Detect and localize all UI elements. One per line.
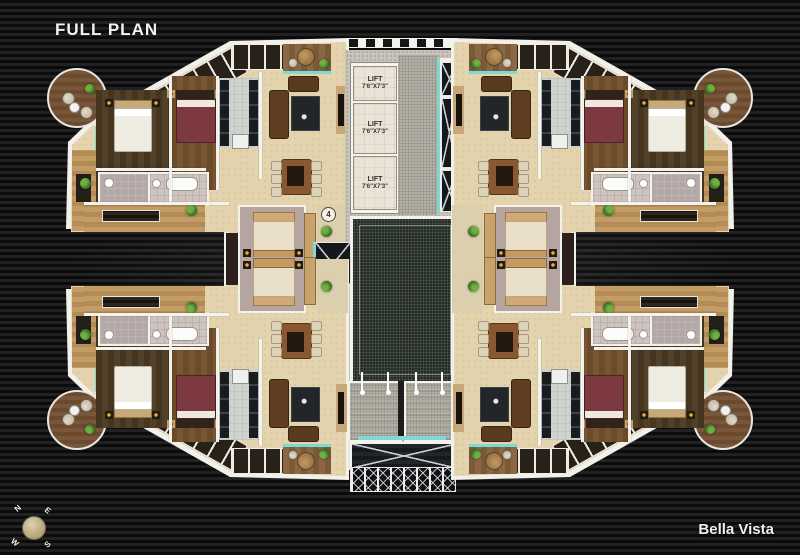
apartment-quadrant — [40, 259, 400, 490]
lift-size-label: 7'6"X7'3" — [362, 84, 388, 91]
balcony-table — [297, 48, 315, 66]
floor-plan-canvas: FULL PLAN Bella Vista — [0, 0, 800, 555]
deck-table — [69, 405, 80, 416]
sink — [152, 330, 161, 339]
nightstand — [105, 411, 113, 419]
master-bed — [648, 108, 686, 152]
lift-3: LIFT 7'6"X7'3" — [353, 156, 397, 210]
refrigerator — [232, 369, 249, 384]
foyer-plant — [468, 226, 479, 237]
coffee-table — [291, 96, 320, 131]
middle-bedroom-cabinet — [484, 213, 496, 261]
living-sofa — [481, 76, 512, 92]
living-sofa — [511, 379, 531, 428]
connector-wardrobe — [562, 259, 574, 285]
dining-chair — [311, 347, 322, 357]
connector-wardrobe — [226, 259, 238, 285]
dining-chair — [478, 321, 489, 331]
nightstand — [497, 249, 505, 257]
balcony-plant — [319, 449, 329, 459]
interior-wall — [259, 72, 262, 179]
deck-plant — [705, 84, 715, 94]
dining-table-center — [496, 166, 513, 186]
dining-chair — [478, 187, 489, 197]
dining-chair — [518, 161, 529, 171]
terrace-plant — [709, 329, 720, 340]
lift-2: LIFT 7'6"X7'3" — [353, 103, 397, 154]
balcony-plant — [319, 59, 329, 69]
unit-number: 4 — [326, 210, 330, 219]
terrace-plant — [603, 205, 614, 216]
deck-chair — [707, 399, 720, 412]
kitchen-counter — [542, 80, 551, 146]
sink — [152, 179, 161, 188]
balcony-table — [485, 452, 503, 470]
building-plan: LIFT 7'6"X7'3" LIFT 7'6"X7'3" LIFT 7'6"X… — [0, 0, 800, 555]
apartment-quadrant — [400, 259, 760, 490]
nightstand — [295, 261, 303, 269]
dining-chair — [518, 174, 529, 184]
nightstand — [687, 411, 695, 419]
middle-bed — [505, 266, 547, 297]
dining-chair — [518, 321, 529, 331]
master-bed — [114, 366, 152, 410]
toilet — [686, 330, 696, 340]
second-bed-headboard — [586, 90, 624, 99]
balcony-glass-line — [469, 71, 517, 74]
dining-chair — [311, 334, 322, 344]
nightstand — [640, 411, 648, 419]
living-sofa — [288, 76, 319, 92]
kitchen-counter — [249, 372, 258, 438]
kitchen-counter — [542, 372, 551, 438]
terrace-plant — [186, 205, 197, 216]
kitchen-counter — [249, 80, 258, 146]
interior-wall — [96, 347, 206, 350]
foyer-plant — [468, 281, 479, 292]
compass-dial-icon — [22, 516, 46, 540]
kitchen-counter — [571, 80, 580, 146]
middle-bed-headboard — [505, 258, 547, 268]
dining-chair — [271, 321, 282, 331]
connector-wardrobe — [562, 233, 574, 259]
coffee-table — [291, 387, 320, 422]
living-sofa — [481, 426, 512, 442]
lift-label: LIFT — [368, 121, 383, 129]
deck-chair — [80, 399, 93, 412]
second-bed — [584, 99, 624, 143]
second-bed — [584, 375, 624, 419]
bathroom — [98, 172, 152, 206]
bathroom — [98, 312, 152, 346]
deck-plant — [705, 424, 715, 434]
terrace-pergola-slats — [102, 296, 160, 308]
sink — [639, 330, 648, 339]
toilet — [104, 178, 114, 188]
interior-wall — [169, 314, 172, 442]
master-bed — [114, 108, 152, 152]
nightstand — [640, 99, 648, 107]
dining-chair — [271, 334, 282, 344]
deck-chair — [707, 106, 720, 119]
nightstand — [549, 261, 557, 269]
top-balcony-slats — [514, 448, 569, 474]
second-bed — [176, 375, 216, 419]
balcony-glass-line — [283, 71, 331, 74]
second-bed-headboard — [176, 90, 214, 99]
living-sofa — [269, 90, 289, 139]
balcony-chair — [288, 450, 298, 460]
apartment-quadrant — [400, 28, 760, 259]
refrigerator — [551, 369, 568, 384]
top-balcony-slats — [514, 44, 569, 70]
lift-size-label: 7'6"X7'3" — [362, 184, 388, 191]
interior-wall — [169, 76, 172, 204]
bathroom — [648, 312, 702, 346]
dining-table-center — [287, 166, 304, 186]
nightstand — [687, 99, 695, 107]
kitchen-counter — [220, 372, 229, 438]
dining-chair — [271, 187, 282, 197]
balcony-glass-line — [469, 444, 517, 447]
connector-wardrobe — [226, 233, 238, 259]
dining-chair — [311, 321, 322, 331]
living-sofa — [511, 90, 531, 139]
balcony-plant — [471, 59, 481, 69]
middle-bed — [253, 266, 295, 297]
dining-chair — [311, 174, 322, 184]
living-sofa — [288, 426, 319, 442]
refrigerator — [551, 134, 568, 149]
balcony-table — [297, 452, 315, 470]
tv-screen — [456, 392, 462, 424]
second-bed-headboard — [176, 419, 214, 428]
interior-wall — [216, 76, 219, 190]
tv-screen — [456, 94, 462, 126]
refrigerator — [232, 134, 249, 149]
middle-bedroom-cabinet — [304, 257, 316, 305]
kitchen-counter — [571, 372, 580, 438]
dining-chair — [478, 347, 489, 357]
tv-screen — [338, 94, 344, 126]
nightstand — [152, 99, 160, 107]
dining-chair — [518, 334, 529, 344]
interior-wall — [628, 314, 631, 442]
terrace-pergola-slats — [640, 296, 698, 308]
nightstand — [105, 99, 113, 107]
interior-wall — [594, 347, 704, 350]
balcony-table — [485, 48, 503, 66]
nightstand — [243, 249, 251, 257]
middle-bed — [505, 221, 547, 252]
dining-chair — [271, 347, 282, 357]
living-sofa — [269, 379, 289, 428]
terrace-plant — [186, 302, 197, 313]
middle-bedroom-cabinet — [484, 257, 496, 305]
terrace-plant — [80, 178, 91, 189]
dining-chair — [311, 161, 322, 171]
deck-plant — [85, 84, 95, 94]
toilet — [104, 330, 114, 340]
balcony-glass-line — [283, 444, 331, 447]
unit-badge-4: 4 — [321, 207, 336, 222]
dining-table-center — [287, 332, 304, 352]
nightstand — [497, 261, 505, 269]
interior-wall — [96, 168, 206, 171]
interior-wall — [581, 76, 584, 190]
terrace-pergola-slats — [102, 210, 160, 222]
balcony-chair — [502, 58, 512, 68]
dining-chair — [478, 174, 489, 184]
deck-chair — [80, 106, 93, 119]
middle-bed — [253, 221, 295, 252]
terrace-pergola-slats — [640, 210, 698, 222]
dining-chair — [271, 161, 282, 171]
interior-wall — [581, 328, 584, 442]
nightstand — [243, 261, 251, 269]
deck-table — [720, 102, 731, 113]
interior-wall — [538, 72, 541, 179]
coffee-table — [480, 96, 509, 131]
dining-chair — [311, 187, 322, 197]
lift-label: LIFT — [368, 76, 383, 84]
top-balcony-slats — [231, 448, 286, 474]
top-balcony-slats — [231, 44, 286, 70]
dining-chair — [478, 334, 489, 344]
balcony-chair — [288, 58, 298, 68]
interior-wall — [84, 313, 229, 316]
deck-table — [720, 405, 731, 416]
nightstand — [152, 411, 160, 419]
nightstand — [295, 249, 303, 257]
dining-chair — [518, 347, 529, 357]
dining-chair — [478, 161, 489, 171]
balcony-chair — [502, 450, 512, 460]
dining-chair — [518, 187, 529, 197]
terrace-plant — [603, 302, 614, 313]
balcony-plant — [471, 449, 481, 459]
terrace-plant — [80, 329, 91, 340]
nightstand — [549, 249, 557, 257]
terrace-plant — [709, 178, 720, 189]
toilet — [686, 178, 696, 188]
coffee-table — [480, 387, 509, 422]
interior-wall — [259, 339, 262, 446]
second-bed — [176, 99, 216, 143]
kitchen-counter — [220, 80, 229, 146]
interior-wall — [216, 328, 219, 442]
lift-1: LIFT 7'6"X7'3" — [353, 66, 397, 101]
interior-wall — [538, 339, 541, 446]
sink — [639, 179, 648, 188]
tv-screen — [338, 392, 344, 424]
deck-table — [69, 102, 80, 113]
master-bed — [648, 366, 686, 410]
interior-wall — [628, 76, 631, 204]
deck-plant — [85, 424, 95, 434]
interior-wall — [84, 202, 229, 205]
second-bed-headboard — [586, 419, 624, 428]
lift-size-label: 7'6"X7'3" — [362, 129, 388, 136]
bathroom — [648, 172, 702, 206]
interior-wall — [571, 313, 716, 316]
foyer-plant — [321, 226, 332, 237]
interior-wall — [594, 168, 704, 171]
dining-table-center — [496, 332, 513, 352]
middle-bed-headboard — [253, 258, 295, 268]
lift-label: LIFT — [368, 176, 383, 184]
foyer-plant — [321, 281, 332, 292]
interior-wall — [571, 202, 716, 205]
dining-chair — [271, 174, 282, 184]
